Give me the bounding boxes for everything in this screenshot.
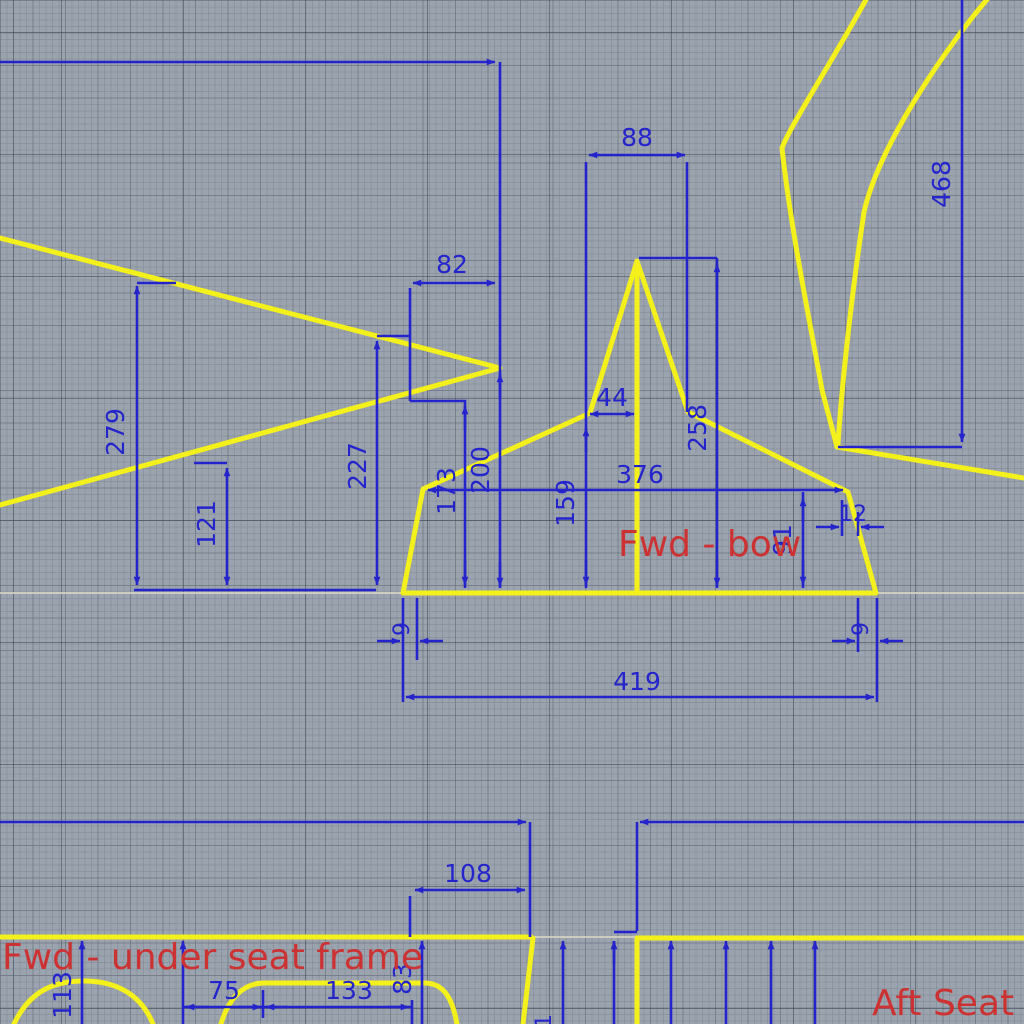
label-fwd-bow: Fwd - bow	[618, 524, 801, 565]
starboard-outer-curve	[782, 0, 1024, 478]
dim-9-left: 9	[377, 598, 443, 702]
dim-468-label: 468	[927, 160, 956, 208]
dim-200-label: 200	[466, 446, 495, 494]
dim-partial-cutoff: 1	[532, 941, 563, 1024]
dim-468: 468	[838, 0, 962, 447]
dim-159: 159	[551, 428, 586, 585]
part-labels: Fwd - bow Fwd - under seat frame Aft Sea…	[2, 524, 1014, 1024]
dim-376-label: 376	[616, 460, 664, 489]
aft-seat-dimension-arrows	[671, 941, 815, 1024]
dim-113-label: 113	[48, 971, 77, 1019]
dim-279: 279	[101, 283, 376, 590]
dim-133-label: 133	[325, 976, 373, 1005]
dim-200-apex: 200	[0, 62, 500, 588]
starboard-inner-curve	[838, 0, 990, 444]
label-fwd-under-seat-frame: Fwd - under seat frame	[2, 937, 423, 978]
dimensions-fwd-bow: 200 88 82 279 121 227	[0, 0, 962, 702]
dim-227: 227	[343, 336, 409, 585]
dim-419: 419	[406, 667, 874, 697]
dim-12: 12	[816, 500, 884, 536]
dim-88-label: 88	[621, 123, 653, 152]
dim-121: 121	[192, 463, 227, 585]
dim-279-label: 279	[101, 408, 130, 456]
dim-75-label: 75	[208, 976, 240, 1005]
under-seat-frame-dome-cutout	[14, 981, 153, 1024]
dim-108-label: 108	[444, 859, 492, 888]
dim-173: 173	[410, 401, 465, 588]
dim-258-label: 258	[683, 404, 712, 452]
dim-9-left-label: 9	[390, 622, 415, 636]
part-outlines	[0, 0, 1024, 1024]
label-aft-seat: Aft Seat	[872, 983, 1014, 1024]
reference-lines	[0, 593, 1024, 937]
dim-partial-label: 1	[532, 1014, 557, 1024]
port-wedge-outline	[0, 238, 500, 505]
dim-159-label: 159	[551, 479, 580, 527]
dim-9-right-label: 9	[849, 622, 874, 636]
dim-419-label: 419	[613, 667, 661, 696]
dim-12-label: 12	[839, 502, 867, 527]
dim-44-label: 44	[596, 383, 628, 412]
dim-108: 108	[410, 859, 525, 937]
cad-viewport[interactable]: 200 88 82 279 121 227	[0, 0, 1024, 1024]
dim-44: 44	[590, 383, 634, 414]
dim-121-label: 121	[192, 500, 221, 548]
cad-drawing: 200 88 82 279 121 227	[0, 0, 1024, 1024]
dim-9-right: 9	[832, 598, 903, 702]
dim-82: 82	[410, 250, 495, 401]
dimensions-under-seat: 108 113 75 133 83 1	[0, 822, 1024, 1024]
dim-227-label: 227	[343, 442, 372, 490]
dim-82-label: 82	[436, 250, 468, 279]
